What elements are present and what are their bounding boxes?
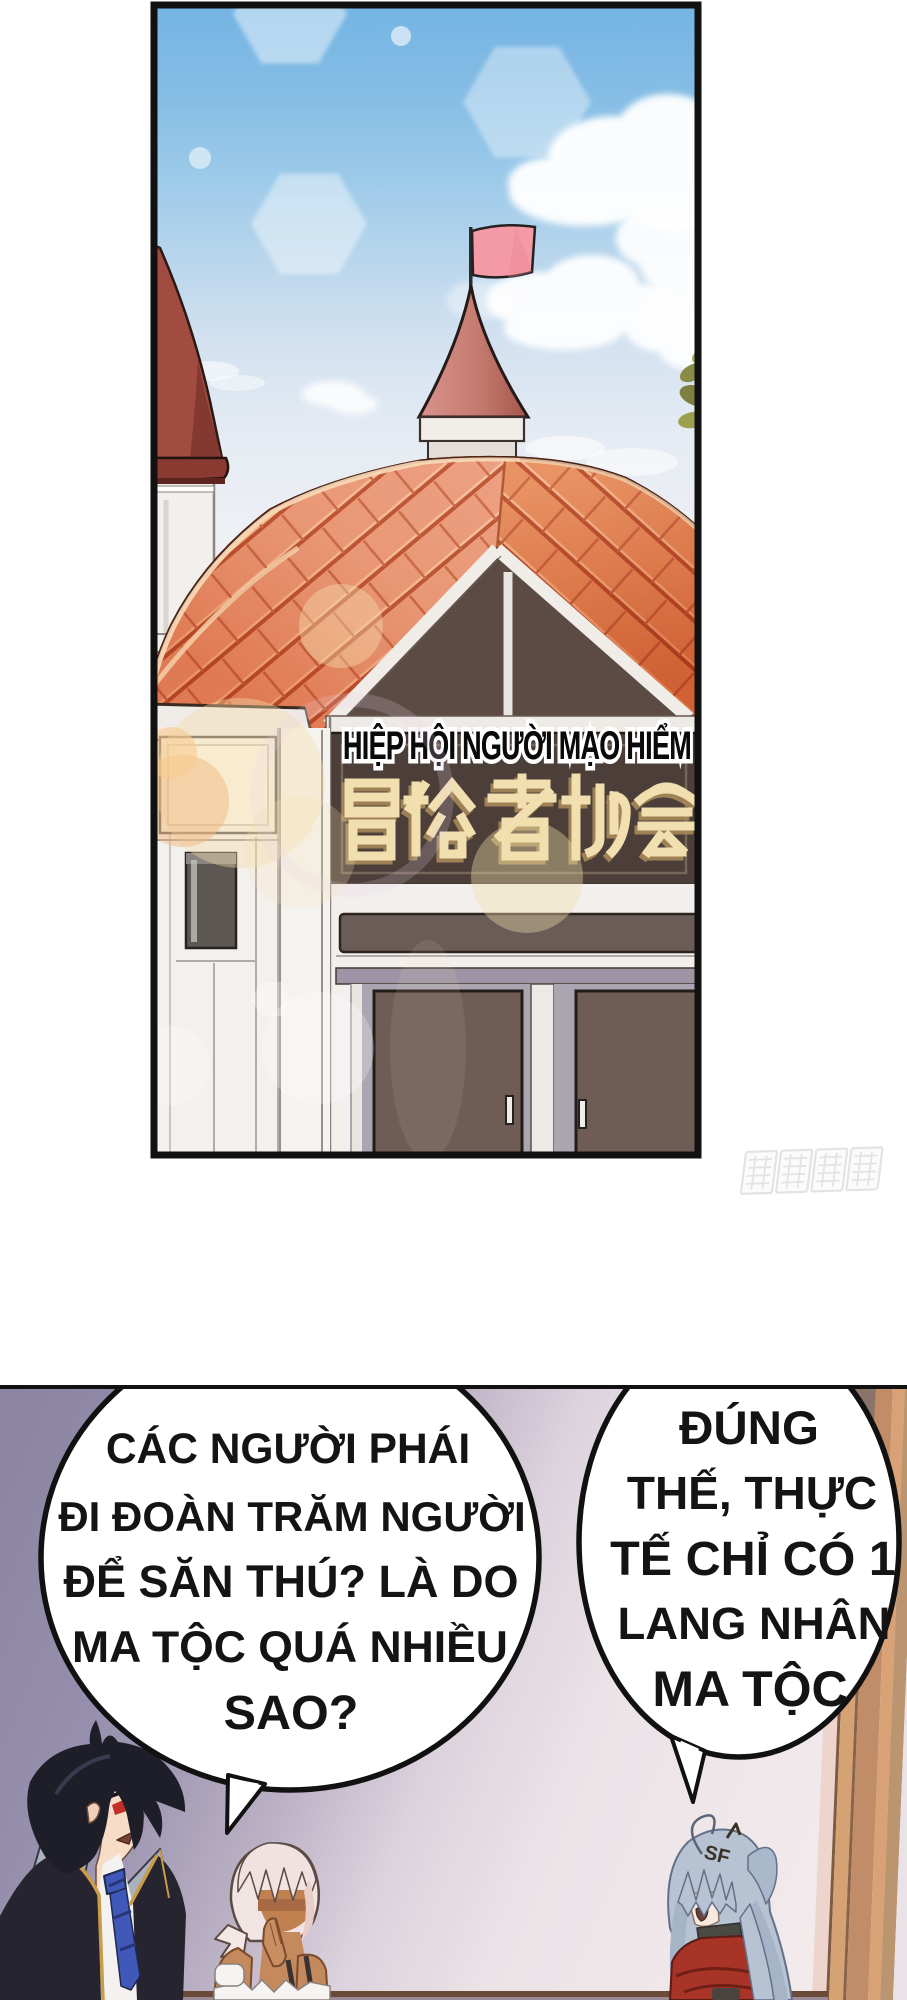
svg-text:ĐI ĐOÀN TRĂM NGƯỜI: ĐI ĐOÀN TRĂM NGƯỜI [58,1492,525,1540]
svg-text:ĐỂ SĂN THÚ? LÀ DO: ĐỂ SĂN THÚ? LÀ DO [64,1556,519,1607]
svg-text:TẾ CHỈ CÓ 1: TẾ CHỈ CÓ 1 [610,1531,896,1586]
svg-text:CÁC NGƯỜI PHÁI: CÁC NGƯỜI PHÁI [106,1424,470,1473]
svg-text:SAO?: SAO? [224,1686,359,1740]
svg-text:MA TỘC QUÁ NHIỀU: MA TỘC QUÁ NHIỀU [72,1621,508,1672]
svg-text:LANG NHÂN: LANG NHÂN [618,1597,891,1649]
svg-text:THẾ, THỰC: THẾ, THỰC [627,1467,877,1519]
svg-text:HIỆP HỘI NGƯỜI MẠO HIỂM: HIỆP HỘI NGƯỜI MẠO HIỂM [343,721,691,768]
svg-text:MA TỘC: MA TỘC [652,1660,847,1717]
svg-text:ĐÚNG: ĐÚNG [679,1400,819,1455]
